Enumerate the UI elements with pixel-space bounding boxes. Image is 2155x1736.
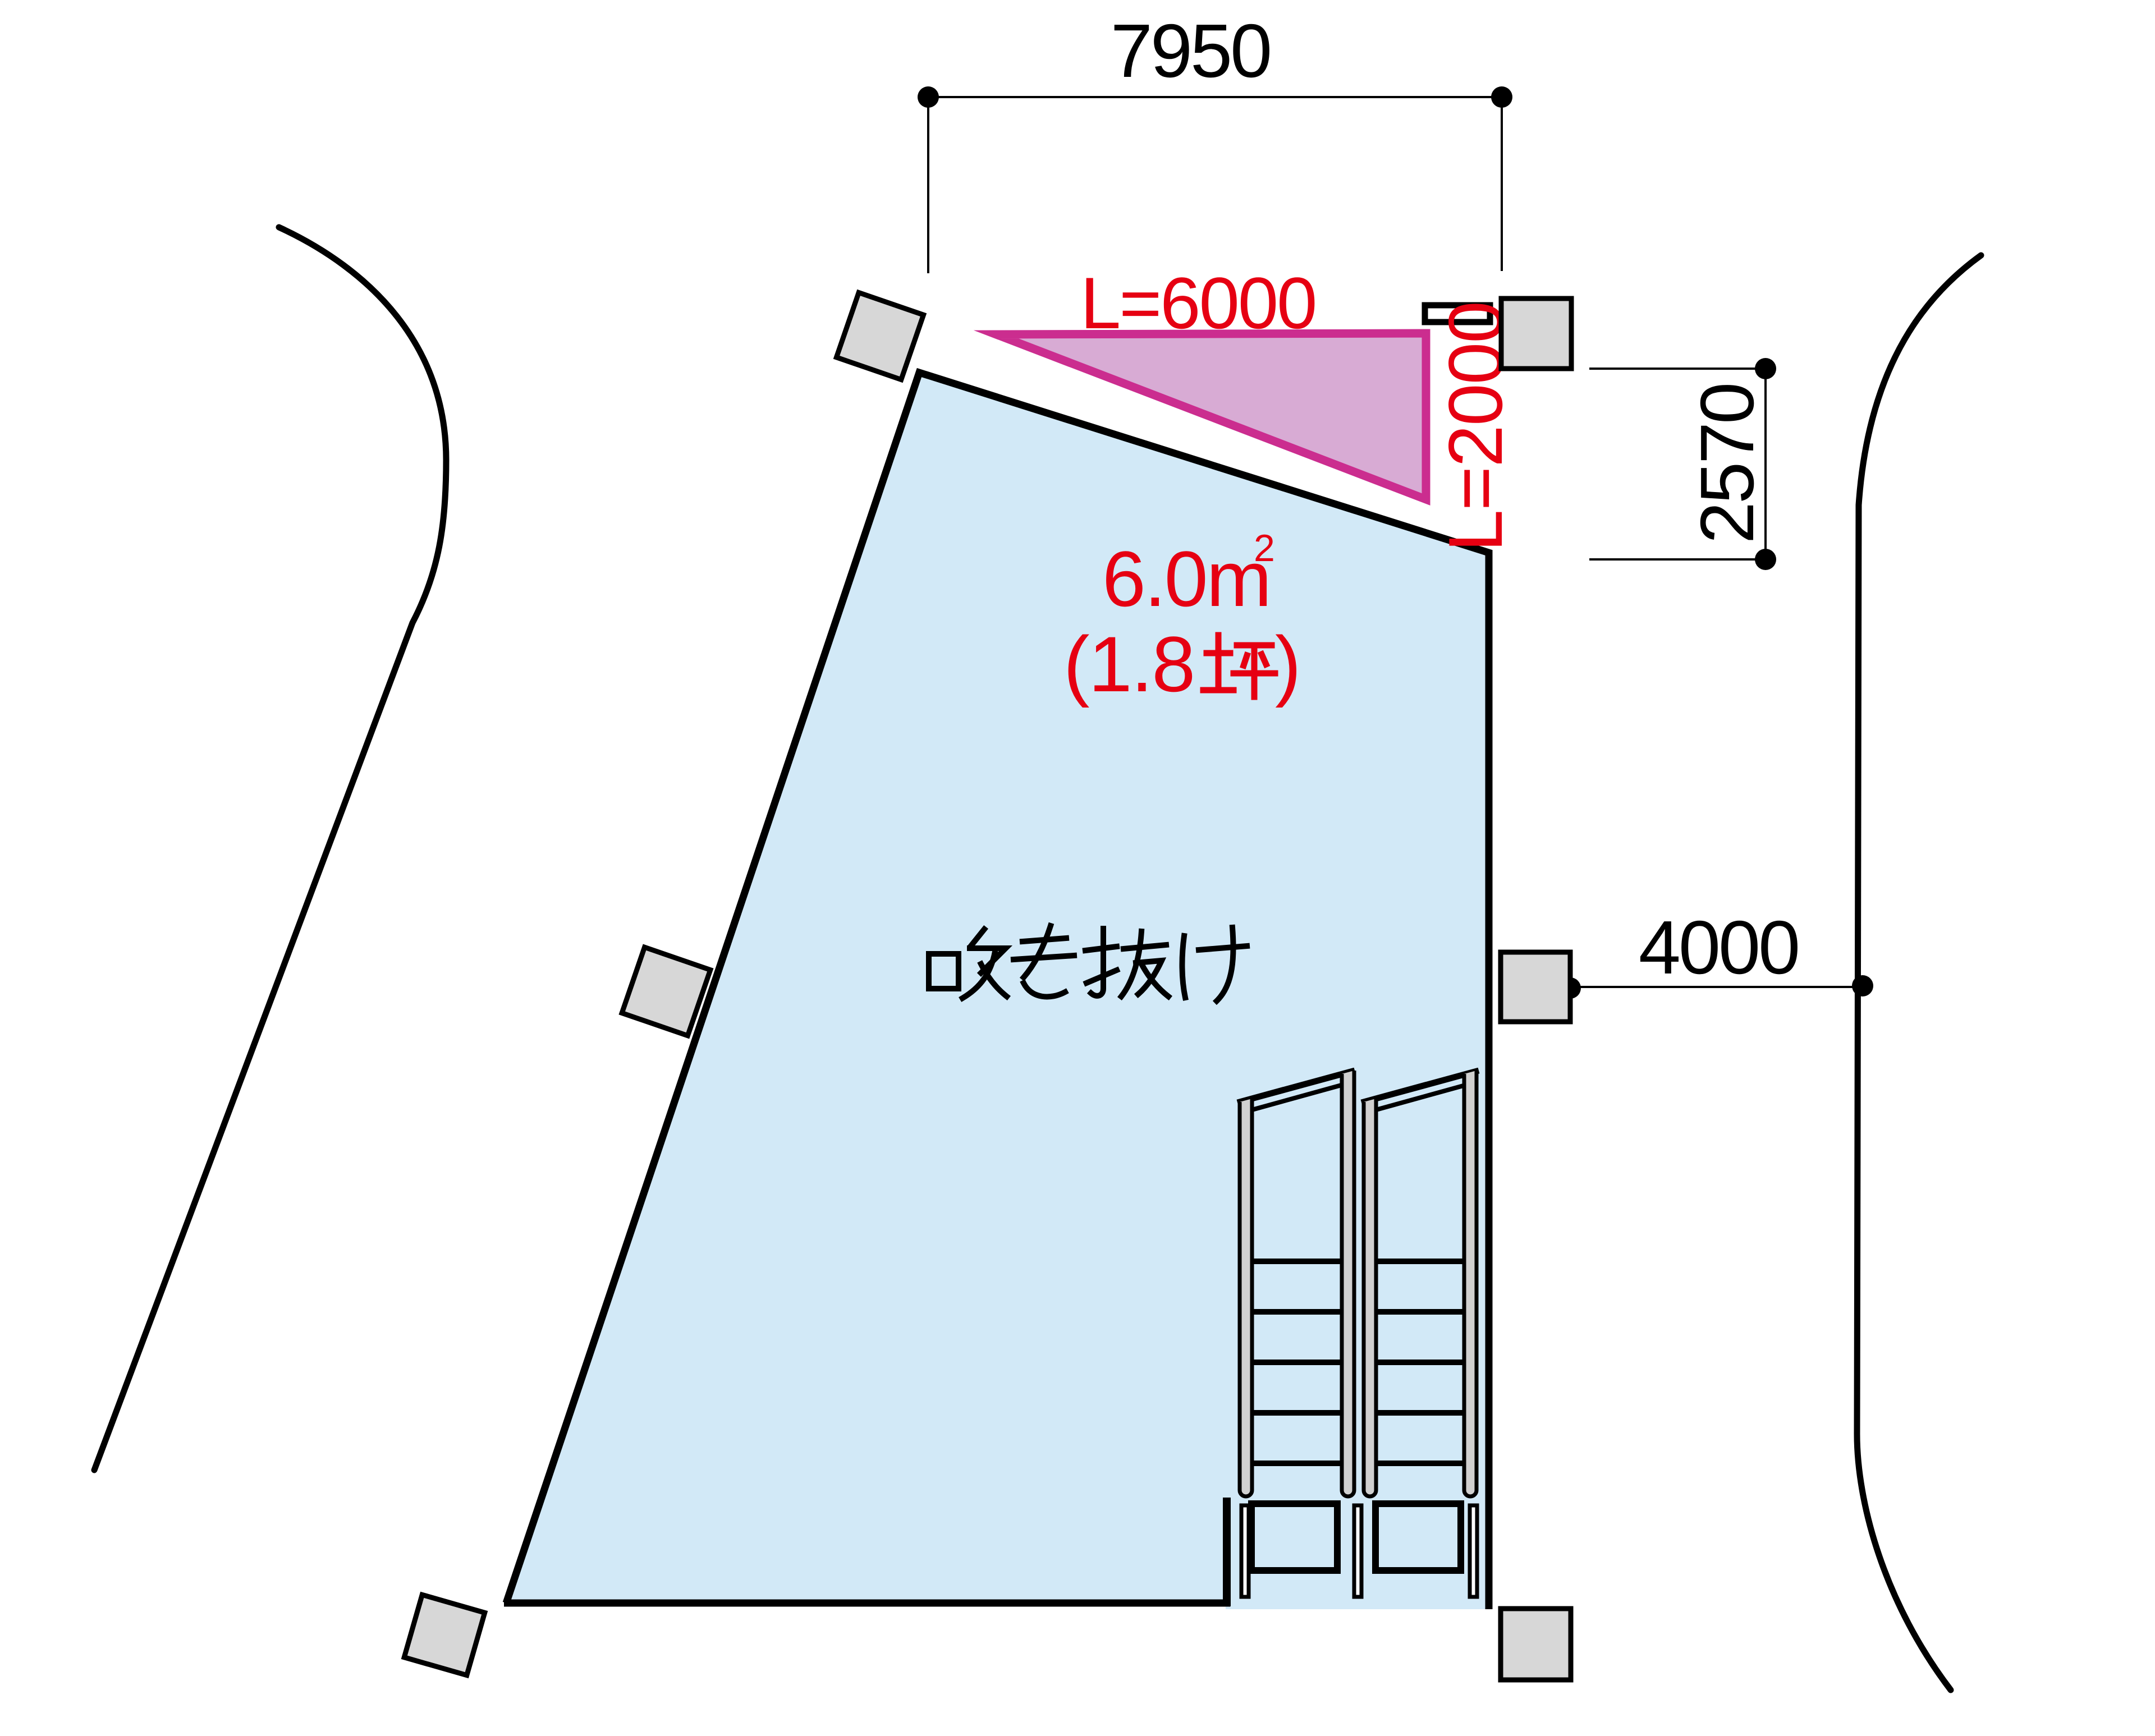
- svg-text:6.0m: 6.0m: [1102, 535, 1270, 623]
- svg-text:(1.8: (1.8: [1063, 620, 1194, 708]
- svg-text:4000: 4000: [1639, 905, 1798, 990]
- svg-text:7950: 7950: [1111, 8, 1270, 93]
- svg-text:): ): [1275, 620, 1301, 708]
- svg-text:2570: 2570: [1685, 384, 1769, 544]
- svg-text:2: 2: [1254, 527, 1275, 570]
- svg-text:L=6000: L=6000: [1080, 262, 1315, 344]
